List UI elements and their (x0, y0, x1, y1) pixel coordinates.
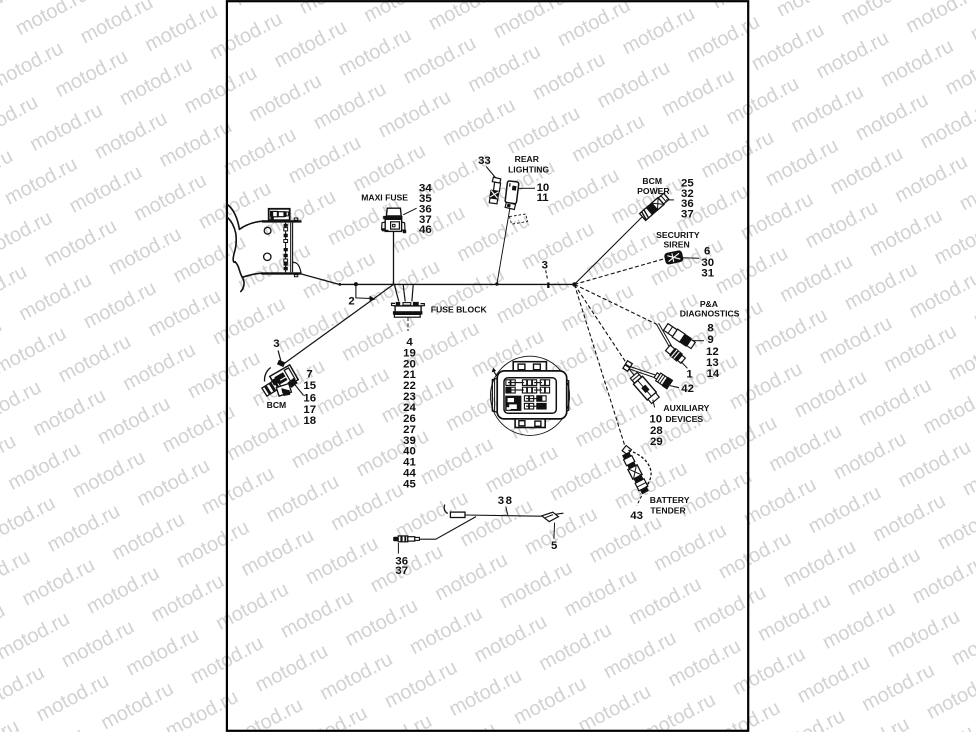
svg-text:5: 5 (551, 540, 558, 552)
svg-text:BATTERY: BATTERY (650, 495, 690, 505)
svg-text:45: 45 (403, 479, 416, 491)
svg-text:37: 37 (395, 565, 408, 577)
svg-text:FUSE BLOCK: FUSE BLOCK (431, 304, 488, 314)
svg-text:BCM: BCM (267, 400, 287, 410)
svg-text:11: 11 (537, 192, 550, 204)
svg-text:15: 15 (303, 380, 316, 392)
svg-text:10: 10 (649, 413, 662, 425)
svg-text:43: 43 (630, 510, 643, 522)
svg-text:42: 42 (681, 383, 694, 395)
svg-text:18: 18 (303, 415, 316, 427)
svg-text:REAR: REAR (515, 154, 540, 164)
svg-text:LIGHTING: LIGHTING (508, 165, 549, 175)
svg-text:TENDER: TENDER (650, 505, 686, 515)
svg-text:AUXILIARY: AUXILIARY (663, 403, 709, 413)
svg-text:BCM: BCM (642, 176, 662, 186)
svg-text:38: 38 (498, 495, 514, 507)
svg-text:POWER: POWER (637, 186, 670, 196)
svg-text:14: 14 (707, 368, 720, 380)
svg-text:3: 3 (542, 259, 548, 271)
svg-text:6: 6 (704, 245, 710, 257)
svg-text:DEVICES: DEVICES (665, 414, 703, 424)
svg-text:MAXI FUSE: MAXI FUSE (361, 193, 408, 203)
svg-text:33: 33 (478, 155, 491, 167)
svg-text:7: 7 (306, 368, 312, 380)
svg-text:3: 3 (273, 338, 279, 350)
svg-text:SECURITY: SECURITY (656, 230, 700, 240)
svg-text:DIAGNOSTICS: DIAGNOSTICS (680, 309, 740, 319)
svg-text:37: 37 (681, 209, 694, 221)
svg-text:P&A: P&A (700, 299, 718, 309)
svg-text:1: 1 (686, 368, 693, 380)
svg-text:16: 16 (303, 393, 316, 405)
svg-text:SIREN: SIREN (663, 240, 689, 250)
svg-text:9: 9 (707, 334, 713, 346)
svg-text:29: 29 (650, 436, 663, 448)
svg-text:46: 46 (419, 224, 432, 236)
svg-text:2: 2 (348, 295, 354, 307)
svg-text:8: 8 (707, 323, 713, 335)
svg-text:31: 31 (701, 267, 714, 279)
